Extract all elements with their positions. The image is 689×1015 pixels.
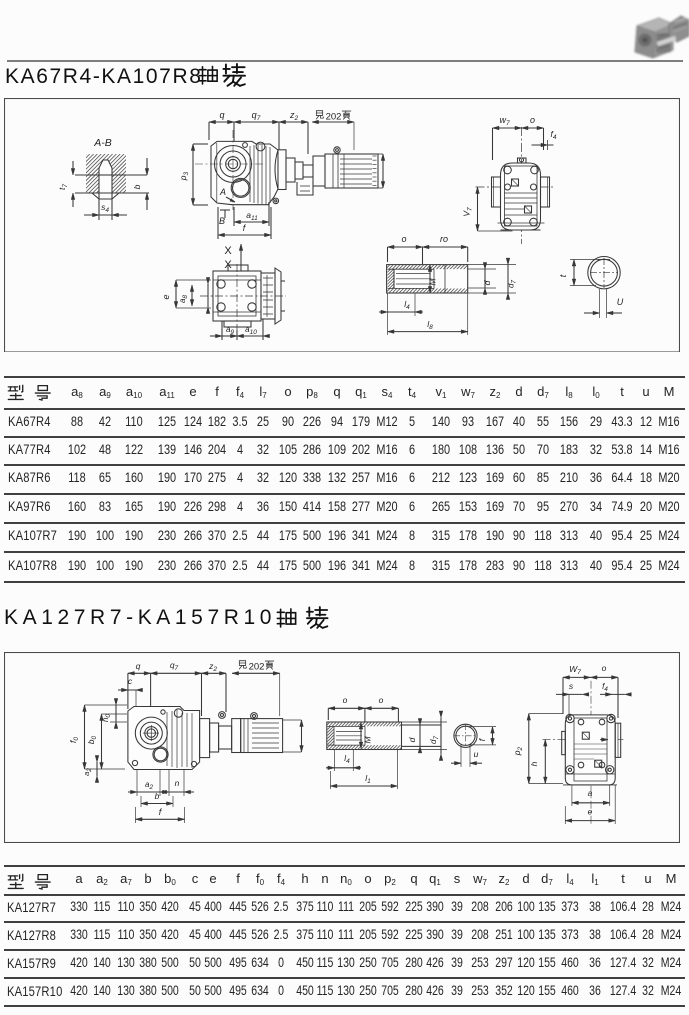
- svg-text:p3: p3: [178, 171, 190, 181]
- svg-text:a2: a2: [82, 768, 93, 776]
- svg-text:ro: ro: [440, 234, 448, 244]
- svg-text:o: o: [401, 234, 406, 244]
- svg-text:o: o: [530, 115, 535, 125]
- svg-text:b: b: [155, 791, 160, 801]
- svg-text:u: u: [474, 749, 479, 759]
- svg-text:q7: q7: [170, 660, 179, 672]
- svg-text:V7: V7: [462, 207, 474, 217]
- svg-text:f4: f4: [602, 682, 608, 693]
- svg-text:f4: f4: [551, 129, 557, 141]
- svg-text:b: b: [132, 184, 142, 189]
- svg-text:z2: z2: [289, 110, 299, 122]
- svg-text:p2: p2: [512, 746, 524, 756]
- svg-text:q7: q7: [252, 110, 261, 122]
- svg-text:a8: a8: [178, 295, 189, 303]
- svg-text:M: M: [428, 278, 438, 286]
- svg-text:t7: t7: [57, 184, 69, 190]
- svg-text:l8: l8: [427, 319, 433, 331]
- svg-text:f: f: [159, 807, 163, 817]
- svg-text:q: q: [219, 110, 224, 120]
- svg-text:202: 202: [326, 112, 342, 123]
- svg-text:a11: a11: [246, 210, 258, 222]
- svg-text:o: o: [343, 695, 348, 705]
- svg-text:A: A: [219, 187, 226, 197]
- svg-text:l4: l4: [404, 299, 410, 311]
- svg-text:b0: b0: [86, 735, 98, 744]
- svg-text:f: f: [477, 737, 487, 741]
- svg-text:e: e: [161, 294, 171, 299]
- svg-text:s4: s4: [101, 202, 109, 214]
- svg-text:W7: W7: [569, 664, 581, 676]
- svg-text:X: X: [224, 245, 232, 257]
- svg-text:202: 202: [249, 661, 265, 672]
- svg-text:n: n: [175, 778, 180, 788]
- svg-text:B: B: [219, 216, 225, 226]
- svg-text:d: d: [407, 737, 417, 742]
- svg-text:q: q: [136, 661, 141, 671]
- svg-text:a: a: [588, 788, 593, 798]
- svg-text:c: c: [128, 676, 133, 686]
- svg-text:t: t: [558, 274, 568, 277]
- svg-text:A-B: A-B: [93, 137, 112, 149]
- svg-text:w7: w7: [499, 115, 510, 127]
- svg-text:s: s: [569, 681, 574, 691]
- svg-text:o: o: [379, 695, 384, 705]
- svg-text:M: M: [363, 736, 373, 744]
- svg-text:z2: z2: [208, 661, 217, 673]
- svg-text:f: f: [243, 223, 247, 233]
- svg-text:o: o: [602, 663, 607, 673]
- svg-text:l4: l4: [344, 754, 350, 765]
- svg-text:f0: f0: [68, 737, 80, 743]
- svg-text:e: e: [588, 807, 593, 817]
- svg-text:l1: l1: [365, 773, 371, 785]
- svg-text:h: h: [529, 761, 539, 766]
- svg-text:d: d: [482, 280, 492, 285]
- svg-text:U: U: [617, 297, 624, 307]
- svg-text:a2: a2: [145, 780, 153, 791]
